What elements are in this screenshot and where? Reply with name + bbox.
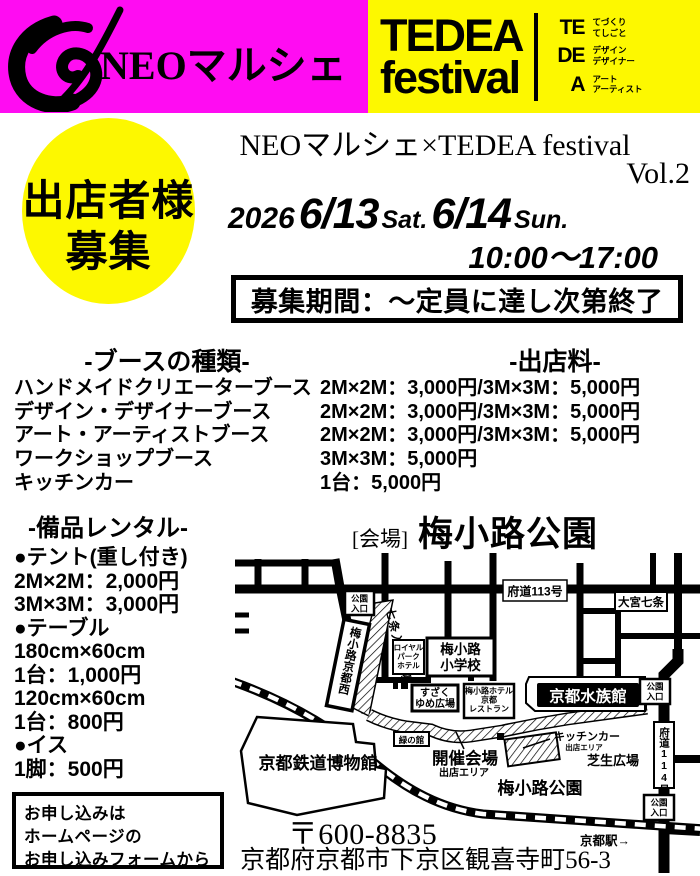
svg-text:府道113号: 府道113号 xyxy=(507,584,562,599)
apply-line2: ホームページの xyxy=(24,826,212,849)
svg-text:府道114号: 府道114号 xyxy=(658,726,670,795)
rental-line: 3M×3M：3,000円 xyxy=(14,593,188,617)
rental-line: 180cm×60cm xyxy=(14,640,188,664)
svg-text:公園: 公園 xyxy=(650,798,667,808)
booth-table: ハンドメイドクリエーターブース 2M×2M：3,000円/3M×3M：5,000… xyxy=(14,374,696,492)
brand-banner: NEOマルシェ xyxy=(0,0,368,113)
kitchen-car-label: キッチンカー xyxy=(554,730,620,743)
booth-type: キッチンカー xyxy=(14,466,320,495)
rental-line: ●テーブル xyxy=(14,617,188,641)
acronym-row: A アート アーティスト xyxy=(549,74,643,96)
svg-text:小学校: 小学校 xyxy=(440,657,481,673)
svg-text:入口: 入口 xyxy=(649,808,667,818)
tedea-logo-subtitle: festival xyxy=(380,57,523,99)
kitchen-car-sublabel: 出店エリア xyxy=(565,742,603,752)
venue-title: [会場] 梅小路公園 xyxy=(260,506,690,557)
header: NEOマルシェ TEDEA festival TE てづくり てしごと DE デ… xyxy=(0,0,700,113)
suzaku-yume-plaza: すざく ゆめ広場 xyxy=(412,685,458,711)
venue-bracket: [会場] xyxy=(352,523,408,553)
rental-list: ●テント(重し付き) 2M×2M：2,000円 3M×3M：3,000円 ●テー… xyxy=(14,546,188,781)
booth-row: キッチンカー 1台：5,000円 xyxy=(14,468,696,492)
rental-line: 1台：1,000円 xyxy=(14,664,188,688)
venue-name: 梅小路公園 xyxy=(418,506,598,557)
svg-text:入口: 入口 xyxy=(350,604,368,614)
recruit-badge: 出店者様 募集 xyxy=(22,118,195,304)
rental-line: 2M×2M：2,000円 xyxy=(14,570,188,594)
svg-text:すざく: すざく xyxy=(420,686,450,699)
rental-line: 1台：800円 xyxy=(14,711,188,735)
divider xyxy=(534,13,538,101)
acronym-row: DE デザイン デザイナー xyxy=(549,45,643,67)
badge-line1: 出店者様 xyxy=(22,177,194,228)
svg-text:ホテル: ホテル xyxy=(397,661,420,670)
rental-line: 1脚：500円 xyxy=(14,758,188,782)
event-area-sublabel: 出店エリア xyxy=(439,766,489,779)
recruit-period-box: 募集期間：～定員に達し次第終了 xyxy=(231,275,683,323)
venue-address: 京都府京都市下京区観喜寺町56-3 xyxy=(228,840,623,876)
apply-info-box: お申し込みは ホームページの お申し込みフォームから xyxy=(12,792,224,869)
svg-text:緑の館: 緑の館 xyxy=(399,735,425,745)
booth-fee: 1台：5,000円 xyxy=(320,466,696,495)
rental-line: ●イス xyxy=(14,734,188,758)
svg-text:公園: 公園 xyxy=(351,594,368,604)
park-entrance-top: 公園 入口 xyxy=(345,591,374,615)
svg-text:京都水族館: 京都水族館 xyxy=(549,687,627,706)
railway-museum-label: 京都鉄道博物館 xyxy=(259,753,378,773)
acronym-abbr: DE xyxy=(549,45,585,67)
park-entrance-south: 公園 入口 xyxy=(644,795,674,820)
omiya-shichijo-label: 大宮七条 xyxy=(615,592,667,611)
lawn-plaza-label: 芝生広場 xyxy=(587,753,639,768)
royal-park-hotel: ロイヤル パーク ホテル xyxy=(393,640,424,674)
tedea-banner: TEDEA festival TE てづくり てしごと DE デザイン デザイナ… xyxy=(368,0,700,113)
svg-text:大宮七条: 大宮七条 xyxy=(618,595,664,609)
green-house-label: 緑の館 xyxy=(394,732,429,746)
umekoji-hotel-restaurant: 梅小路ホテル 京都 レストラン xyxy=(464,684,514,718)
event-day1-dow: Sat. xyxy=(381,206,427,235)
svg-text:公園: 公園 xyxy=(646,682,663,692)
acronym-desc: アート アーティスト xyxy=(593,74,643,95)
kyoto-aquarium: 京都水族館 xyxy=(526,677,645,711)
apply-line1: お申し込みは xyxy=(24,803,212,826)
event-area-label: 開催会場 xyxy=(432,748,499,768)
acronym-row: TE てづくり てしごと xyxy=(549,17,643,39)
umekoji-park-label: 梅小路公園 xyxy=(498,778,583,798)
svg-text:入口: 入口 xyxy=(645,692,663,702)
route114-label: 府道114号 xyxy=(654,722,674,795)
acronym-desc: デザイン デザイナー xyxy=(593,45,635,66)
svg-text:梅小路ホテル: 梅小路ホテル xyxy=(465,686,513,696)
badge-line2: 募集 xyxy=(65,228,151,279)
kitchen-car-area xyxy=(504,732,559,766)
event-day2-dow: Sun. xyxy=(514,206,568,235)
acronym-abbr: TE xyxy=(549,17,585,39)
svg-text:梅小路: 梅小路 xyxy=(440,641,481,657)
svg-text:京都: 京都 xyxy=(481,695,497,705)
park-entrance-aquarium: 公園 入口 xyxy=(640,679,670,704)
rental-line: 120cm×60cm xyxy=(14,687,188,711)
tedea-logo: TEDEA festival xyxy=(380,15,523,99)
tedea-acronym: TE てづくり てしごと DE デザイン デザイナー A アート アーティスト xyxy=(549,17,643,95)
rental-header: -備品レンタル- xyxy=(8,508,208,543)
svg-text:ゆめ広場: ゆめ広場 xyxy=(415,697,455,710)
event-time: 10:00～17:00 xyxy=(400,232,658,277)
acronym-desc: てづくり てしごと xyxy=(593,17,627,38)
event-day1: 6/13 xyxy=(299,190,379,239)
event-volume: Vol.2 xyxy=(500,157,690,191)
umekoji-elementary-school: 梅小路 小学校 xyxy=(427,638,494,676)
svg-text:ロイヤル: ロイヤル xyxy=(394,643,424,652)
acronym-abbr: A xyxy=(549,74,585,96)
route113-label: 府道113号 xyxy=(503,580,567,601)
rental-line: ●テント(重し付き) xyxy=(14,546,188,570)
brand-name: NEOマルシェ xyxy=(100,46,347,86)
svg-text:レストラン: レストラン xyxy=(469,705,509,714)
svg-text:パーク: パーク xyxy=(397,651,420,661)
tedea-logo-title: TEDEA xyxy=(380,15,523,57)
apply-line3: お申し込みフォームから xyxy=(24,849,212,872)
event-year: 2026 xyxy=(228,202,295,236)
